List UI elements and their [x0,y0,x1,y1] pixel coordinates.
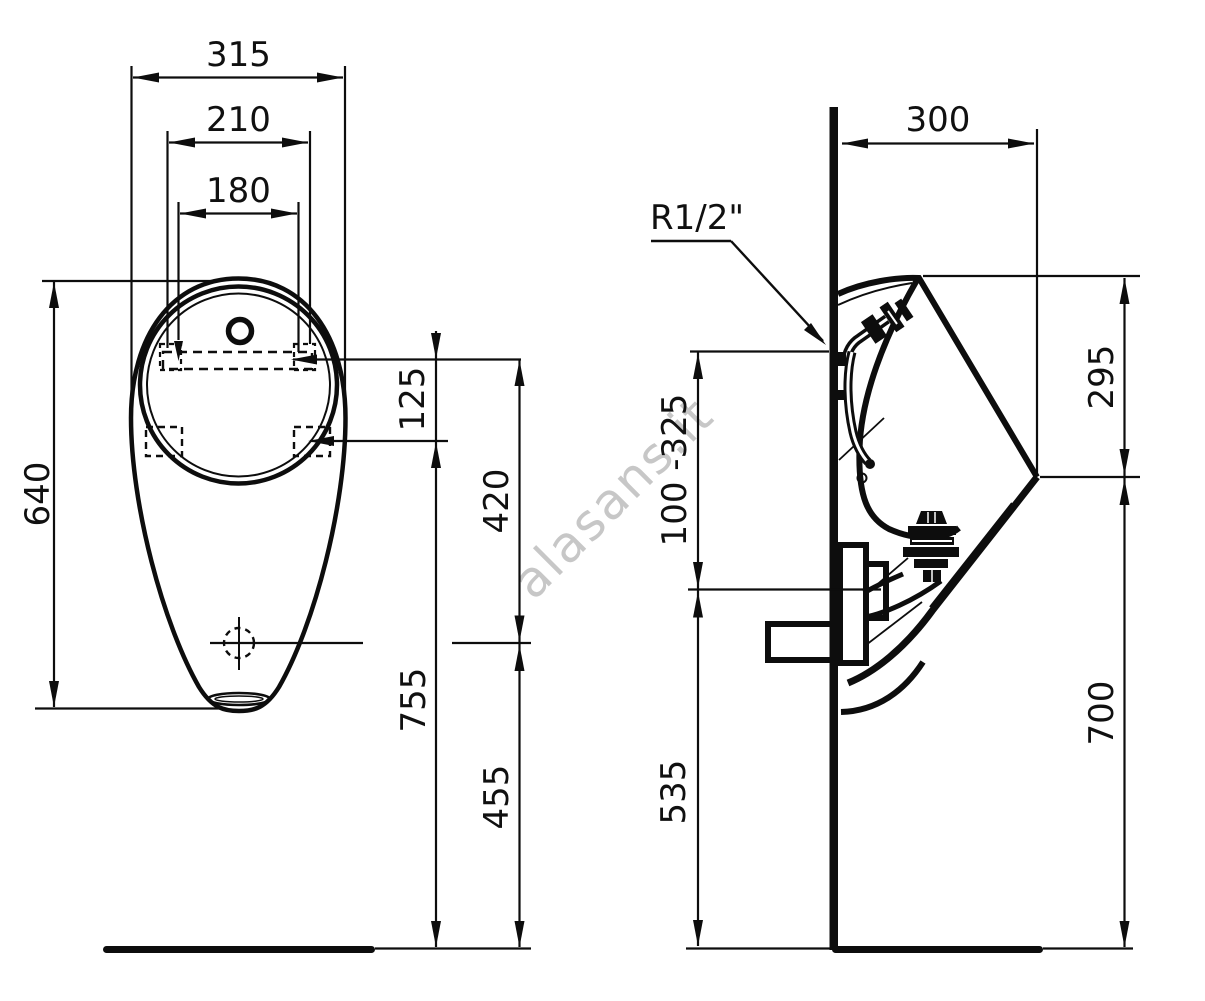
side-view: R1/2" 300 295 700 [650,100,1140,953]
flush-valve-assembly [838,299,913,483]
front-body [131,279,346,712]
waste-pipe-in-wall [768,624,838,660]
dim-overall-height-label: 640 [18,462,58,527]
dim-420-455: 420 455 [477,360,525,948]
technical-drawing-urinal: alasans.it 315 [0,0,1205,1001]
dim-hanger-width: 210 [168,100,311,348]
dim-295-700: 295 700 [923,276,1140,947]
dim-inlet-range-label: 100 -325 [655,394,695,547]
dim-overall-height: 640 [18,281,220,709]
front-view: 315 210 180 640 [18,35,531,953]
hanger-bracket-hidden [163,352,312,369]
wall-section [830,107,839,950]
dim-fixing-spacing: 180 [174,171,299,361]
dim-spout-height-label: 700 [1082,681,1122,746]
dim-hanger-to-fixing-label: 125 [393,367,433,432]
dim-hanger-width-label: 210 [206,100,271,140]
dim-fixing-spacing-label: 180 [206,171,271,211]
front-floor-line [103,946,531,953]
water-inlet-hole [229,320,252,343]
drawing-canvas: alasans.it 315 [0,0,1205,1001]
dim-waste-height-label: 535 [654,760,694,825]
dim-fixing-above-floor-label: 755 [394,668,434,733]
dim-overall-width-label: 315 [206,35,271,75]
dim-125-755: 125 755 [393,331,441,947]
dim-depth-label: 300 [906,100,971,140]
inlet-thread-callout: R1/2" [650,198,826,345]
drain-slot-inner [215,696,263,702]
dim-depth: 300 [842,100,1037,475]
inlet-thread-label: R1/2" [650,198,744,238]
rim-outer-circle [140,287,337,484]
bottom-shell-edge [841,662,923,712]
drain-slot-outer [208,693,270,705]
drain-fitting [768,511,959,663]
waste-socket-inner [866,564,886,618]
waste-socket-outer [840,545,866,663]
dim-hanger-to-outlet-label: 420 [477,469,517,534]
side-floor-line [686,946,1133,953]
dim-outlet-above-floor-label: 455 [477,765,517,830]
top-rim-profile [838,278,1037,477]
dim-rim-drop-label: 295 [1082,345,1122,410]
